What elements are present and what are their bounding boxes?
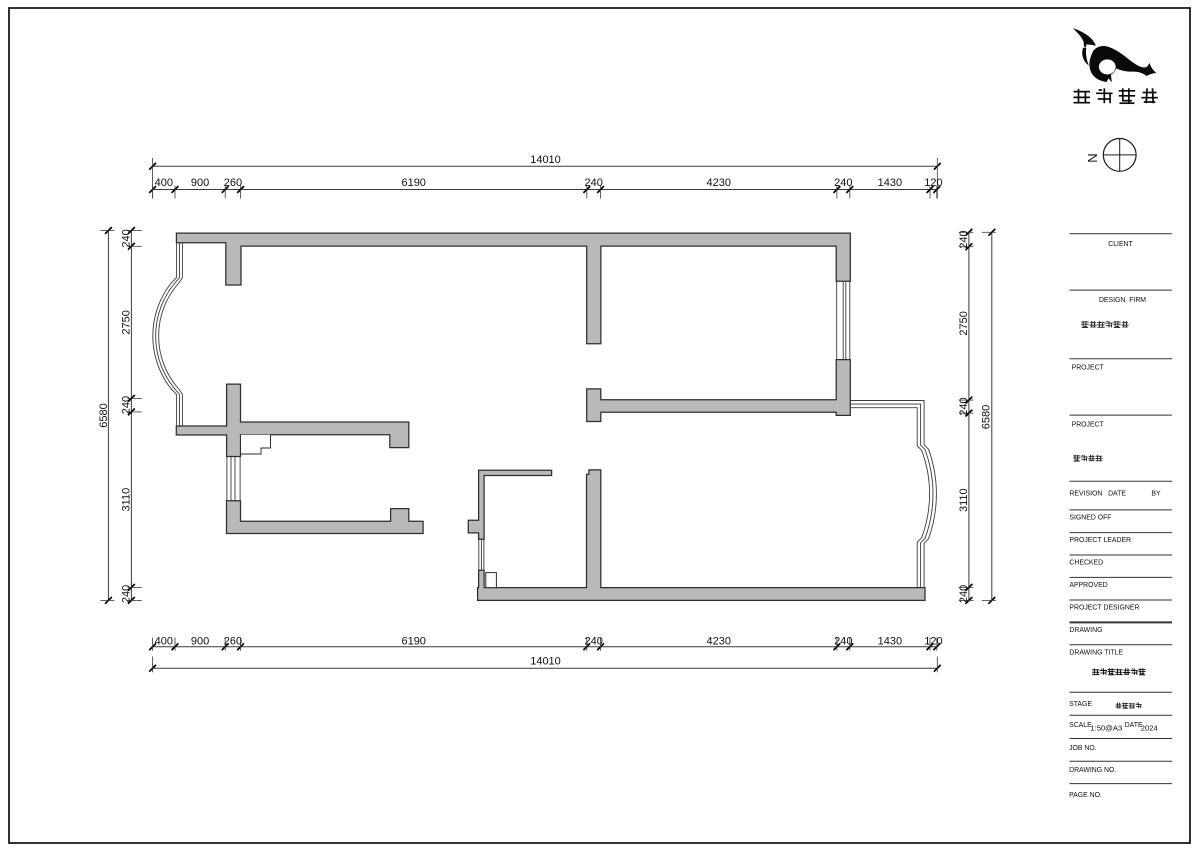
svg-text:CLIENT: CLIENT (1108, 241, 1133, 248)
svg-text:240: 240 (585, 636, 603, 648)
svg-text:2024: 2024 (1141, 724, 1158, 733)
svg-text:PROJECT: PROJECT (1072, 422, 1105, 429)
svg-text:6190: 6190 (401, 636, 425, 648)
svg-text:APPROVED: APPROVED (1069, 582, 1107, 589)
svg-text:4230: 4230 (707, 177, 731, 189)
svg-text:260: 260 (224, 177, 242, 189)
svg-text:6190: 6190 (401, 177, 425, 189)
svg-text:REVISION: REVISION (1069, 490, 1102, 497)
svg-text:DRAWING: DRAWING (1069, 627, 1102, 634)
svg-text:240: 240 (958, 230, 970, 248)
svg-text:400: 400 (155, 177, 173, 189)
svg-text:6580: 6580 (98, 403, 110, 427)
svg-text:3110: 3110 (121, 488, 133, 512)
svg-text:240: 240 (834, 177, 852, 189)
svg-text:240: 240 (958, 397, 970, 415)
svg-text:120: 120 (924, 177, 942, 189)
svg-text:DRAWING NO.: DRAWING NO. (1069, 767, 1116, 774)
svg-text:240: 240 (585, 177, 603, 189)
svg-text:400: 400 (155, 636, 173, 648)
svg-text:900: 900 (191, 177, 209, 189)
svg-text:JOB NO.: JOB NO. (1069, 745, 1097, 752)
svg-text:240: 240 (121, 585, 133, 603)
svg-text:DESIGN FIRM: DESIGN FIRM (1099, 297, 1146, 304)
svg-text:1:50@A3: 1:50@A3 (1090, 724, 1122, 733)
svg-text:4230: 4230 (707, 636, 731, 648)
svg-text:240: 240 (958, 585, 970, 603)
svg-text:PROJECT DESIGNER: PROJECT DESIGNER (1069, 605, 1139, 612)
svg-text:900: 900 (191, 636, 209, 648)
svg-text:STAGE: STAGE (1069, 701, 1092, 708)
svg-text:240: 240 (121, 229, 133, 247)
svg-text:BY: BY (1151, 490, 1161, 497)
svg-text:3110: 3110 (958, 488, 970, 512)
svg-text:14010: 14010 (530, 655, 561, 667)
svg-text:120: 120 (924, 636, 942, 648)
svg-text:SCALE: SCALE (1069, 722, 1092, 729)
svg-text:DATE: DATE (1108, 490, 1126, 497)
svg-text:240: 240 (121, 396, 133, 414)
svg-text:CHECKED: CHECKED (1069, 560, 1103, 567)
svg-text:1430: 1430 (878, 636, 902, 648)
svg-text:N: N (1085, 153, 1100, 162)
svg-text:DRAWING TITLE: DRAWING TITLE (1069, 650, 1123, 657)
svg-text:2750: 2750 (958, 311, 970, 335)
svg-text:6580: 6580 (980, 405, 992, 429)
svg-text:PROJECT LEADER: PROJECT LEADER (1069, 537, 1131, 544)
svg-text:14010: 14010 (530, 154, 561, 166)
svg-text:240: 240 (834, 636, 852, 648)
svg-text:2750: 2750 (121, 310, 133, 334)
svg-text:1430: 1430 (878, 177, 902, 189)
svg-text:SIGNED OFF: SIGNED OFF (1069, 514, 1111, 521)
svg-text:PROJECT: PROJECT (1072, 365, 1105, 372)
svg-text:PAGE NO.: PAGE NO. (1069, 792, 1102, 799)
svg-text:260: 260 (224, 636, 242, 648)
